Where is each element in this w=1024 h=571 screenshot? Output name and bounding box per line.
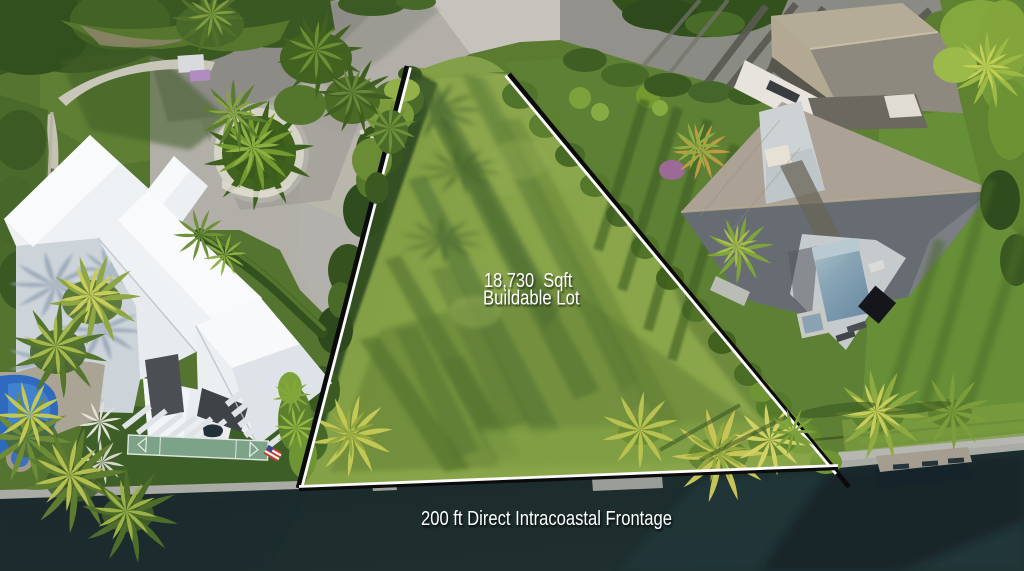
svg-text:Buildable Lot: Buildable Lot [483,288,580,310]
svg-text:200 ft Direct Intracoastal Fro: 200 ft Direct Intracoastal Frontage [421,507,672,530]
